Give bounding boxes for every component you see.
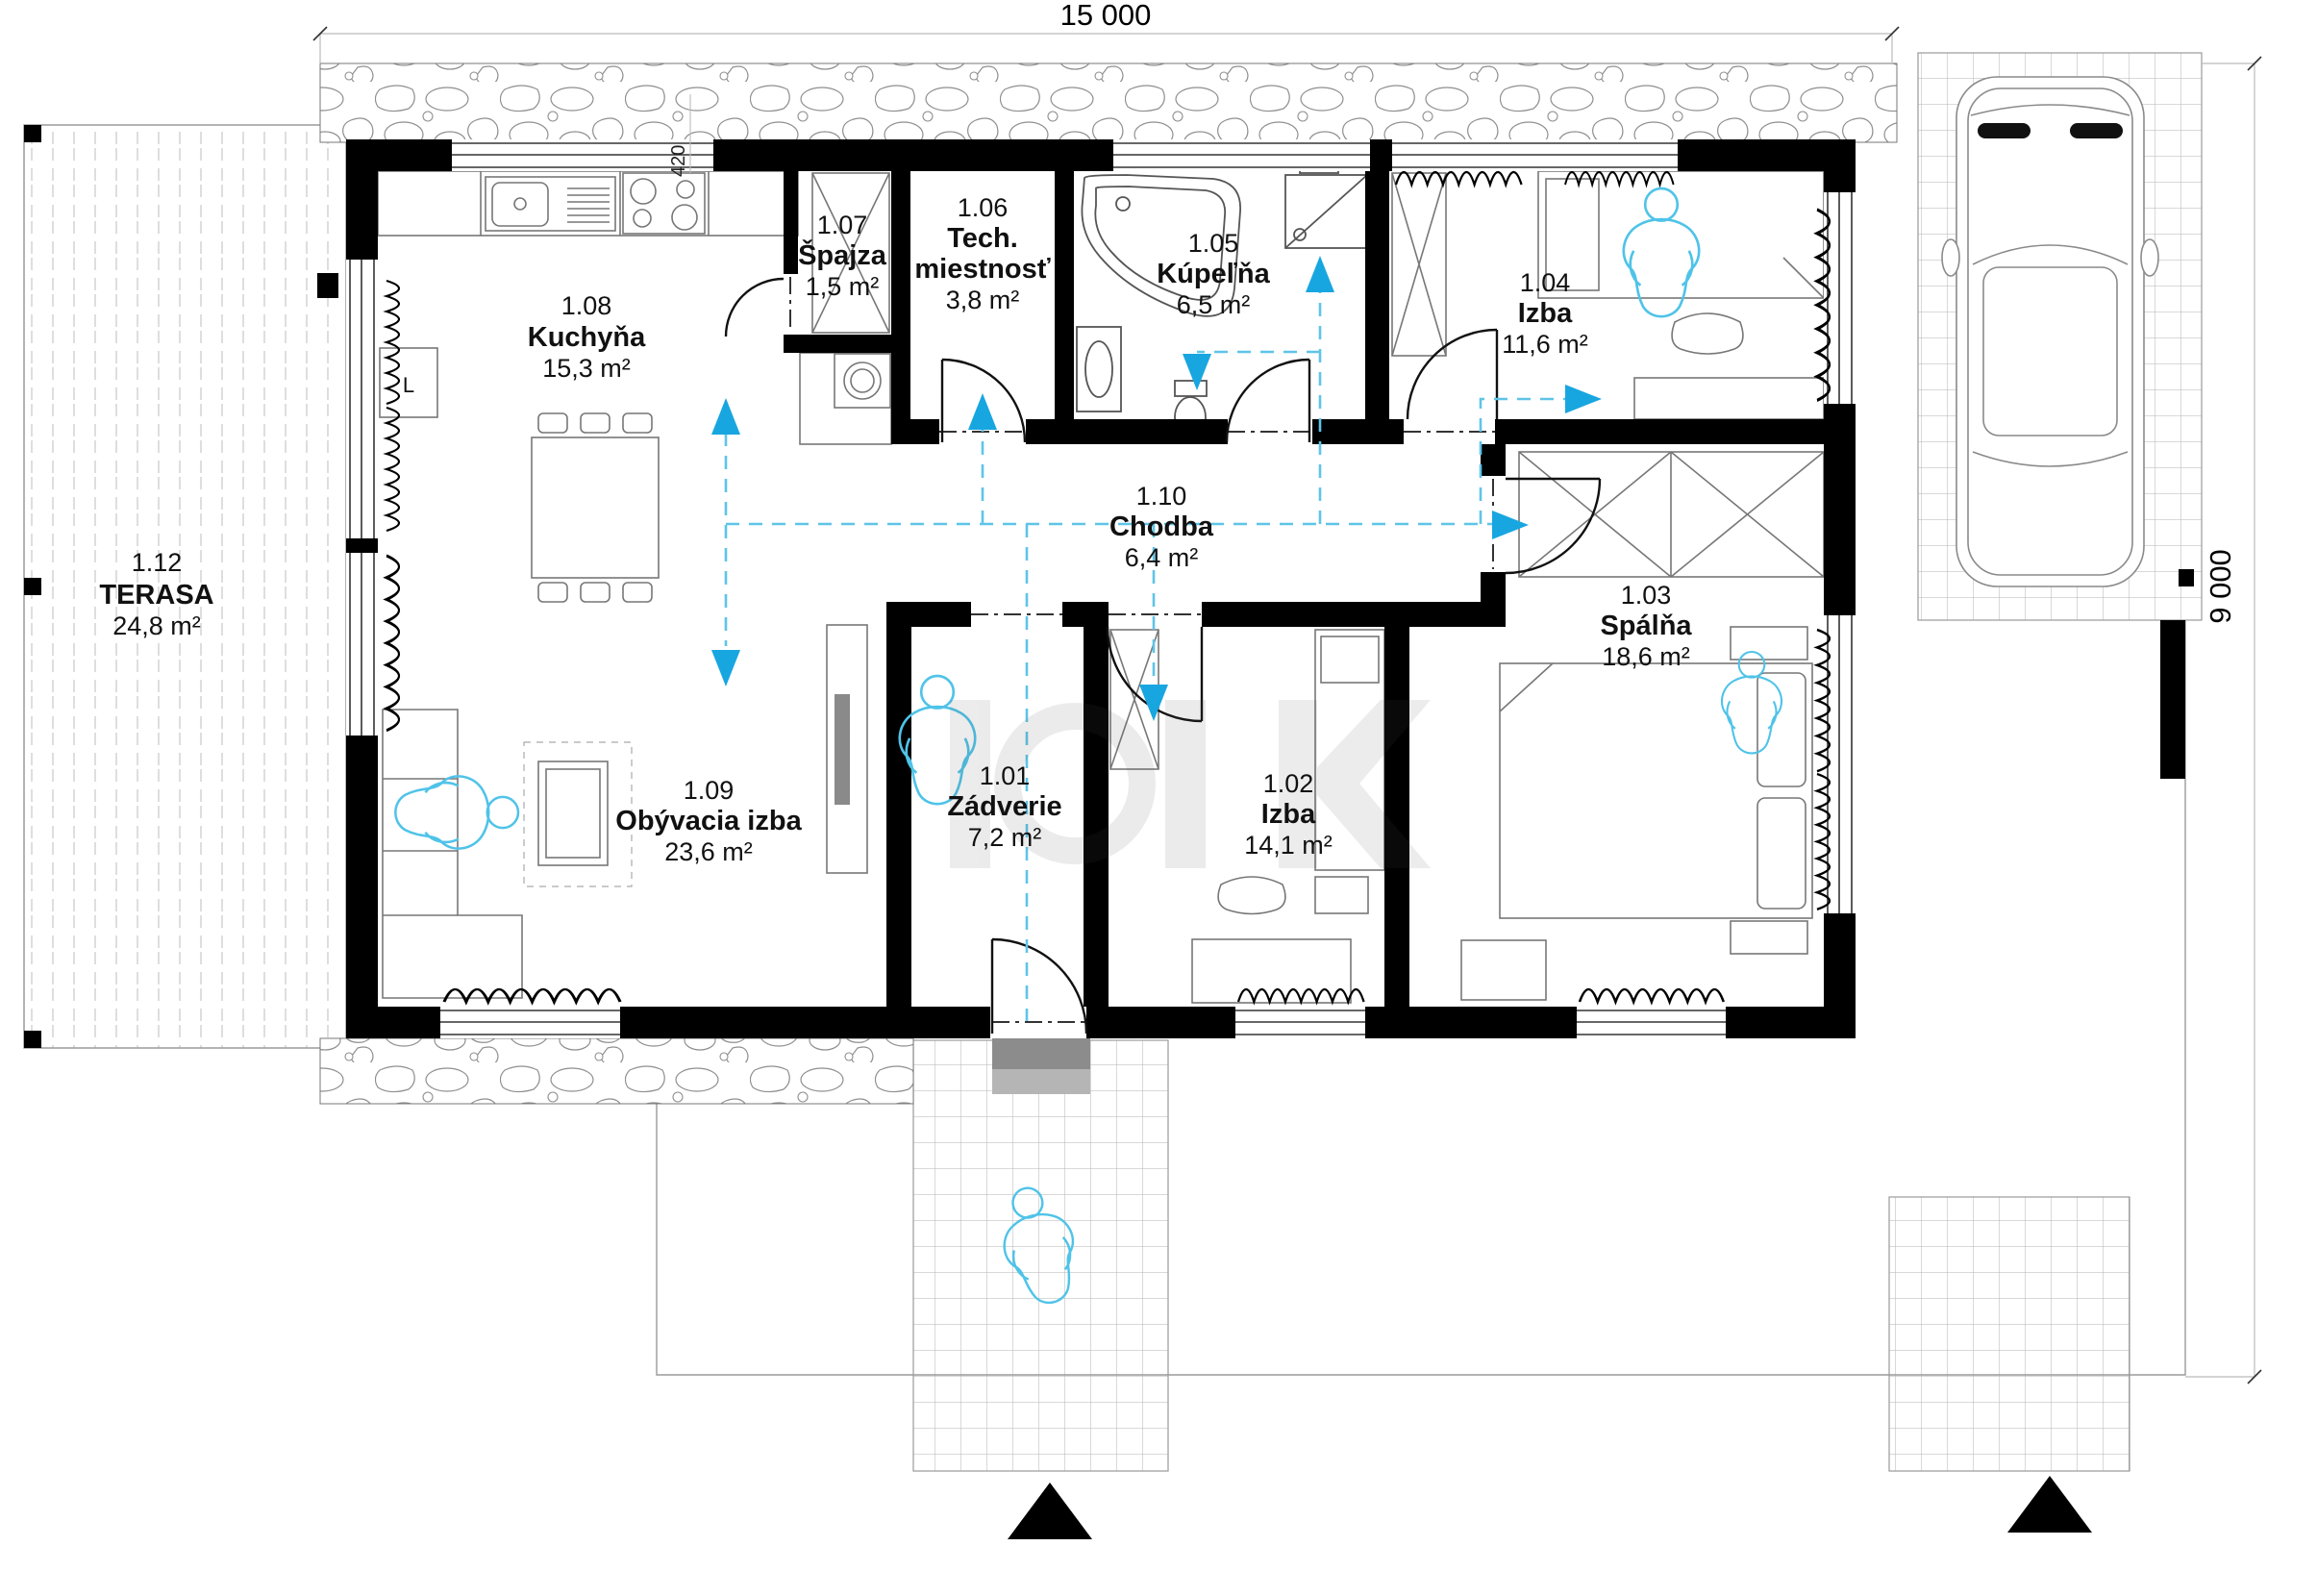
dimension-width: 15 000 [1060, 0, 1152, 32]
room-area: 7,2 m² [968, 823, 1042, 852]
car-top-view [1942, 77, 2158, 586]
tv-stand [827, 625, 867, 873]
room-name: Zádverie [947, 791, 1061, 822]
entrance-steps [992, 1038, 1090, 1094]
room-id: 1.08 [561, 291, 612, 320]
double-bed-spalna [1500, 663, 1812, 918]
room-area: 3,8 m² [946, 286, 1020, 314]
washbasin-icon [1077, 327, 1121, 411]
patio-paving [1889, 1197, 2130, 1471]
room-area: 23,6 m² [664, 837, 753, 866]
room-name: Spálňa [1600, 611, 1692, 641]
dining-table [532, 413, 659, 602]
nightstand-izba2 [1315, 877, 1368, 913]
nightstand-spalna-top [1731, 627, 1807, 660]
walkway-paving [913, 1040, 1168, 1471]
room-id: 1.06 [958, 193, 1009, 222]
dimension-counter: 420 [668, 145, 689, 177]
bench-spalna [1461, 940, 1546, 1000]
room-area: 14,1 m² [1244, 831, 1333, 860]
room-id: 1.10 [1136, 482, 1187, 511]
stove-icon [623, 173, 705, 234]
room-id: 1.09 [684, 776, 735, 805]
room-area: 15,3 m² [542, 354, 631, 383]
shower-icon [1285, 165, 1367, 248]
stone-band-bottom [320, 1038, 913, 1104]
room-name: Kúpeľňa [1157, 259, 1270, 289]
room-name-2: miestnosť [914, 254, 1050, 285]
room-area: 24,8 m² [112, 611, 201, 640]
room-area: 11,6 m² [1502, 330, 1588, 359]
exterior-wall-stub [2160, 620, 2185, 779]
entrance-marker-triangle [1008, 1483, 1092, 1539]
room-area: 6,4 m² [1125, 543, 1199, 572]
fridge-label: L [403, 373, 414, 397]
room-name: Obývacia izba [615, 806, 802, 836]
entrance-marker-triangle-2 [2007, 1476, 2092, 1533]
room-id: 1.05 [1188, 229, 1239, 258]
room-area: 18,6 m² [1602, 642, 1690, 671]
room-name: Špajza [798, 238, 887, 271]
kitchen-sink-icon [486, 177, 615, 231]
bed-izba4 [1538, 171, 1824, 298]
room-name: Kuchyňa [528, 322, 646, 353]
stone-band-top [320, 63, 1897, 142]
room-name: Izba [1518, 298, 1573, 329]
meter-box [317, 273, 338, 298]
room-area: 1,5 m² [806, 272, 880, 301]
room-id: 1.07 [817, 211, 868, 239]
room-name: TERASA [99, 580, 213, 611]
nightstand-spalna-bottom [1731, 921, 1807, 954]
room-name: Izba [1261, 799, 1316, 830]
meter-box-2 [2179, 569, 2194, 586]
room-id: 1.04 [1520, 268, 1571, 297]
floor-plan-page: L [0, 0, 2317, 1596]
dimension-height: 9 000 [2204, 549, 2237, 624]
room-name: Tech. [947, 223, 1018, 254]
floor-plan-canvas: L [0, 0, 2317, 1596]
room-id: 1.02 [1263, 769, 1314, 798]
room-name: Chodba [1109, 511, 1214, 542]
room-id: 1.12 [132, 548, 183, 577]
room-id: 1.01 [980, 761, 1031, 790]
kitchen-counter [378, 171, 798, 236]
room-id: 1.03 [1621, 581, 1672, 610]
room-area: 6,5 m² [1177, 290, 1251, 319]
coffee-table [538, 761, 608, 865]
